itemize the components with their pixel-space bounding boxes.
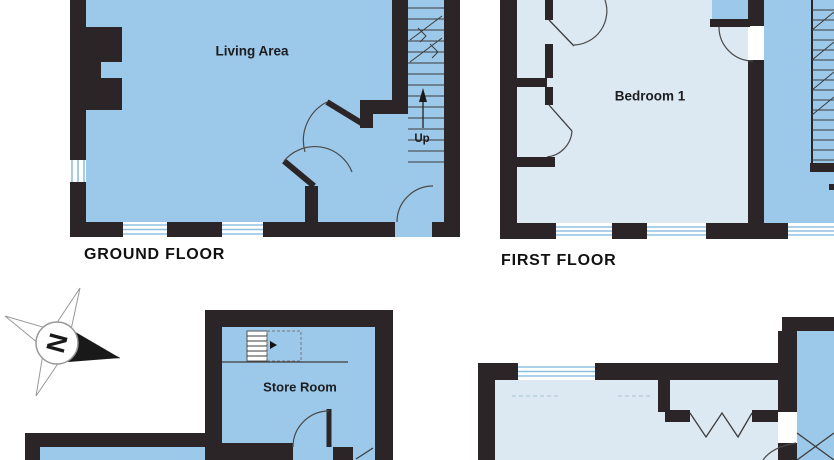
floor-plan-drawing: N [0, 0, 834, 460]
bedroom-1-label: Bedroom 1 [615, 89, 686, 104]
ground-floor-plan [70, 0, 460, 237]
first-floor-title: FIRST FLOOR [501, 252, 616, 270]
window [647, 223, 706, 239]
window [222, 222, 263, 237]
rear-room-plan [478, 317, 834, 460]
first-floor-plan [500, 0, 834, 239]
store-room-plan [25, 310, 393, 460]
window [788, 223, 834, 239]
window [123, 222, 167, 237]
window [518, 363, 595, 380]
store-room-label: Store Room [263, 380, 337, 395]
compass-rose: N [5, 288, 120, 396]
window [556, 223, 612, 239]
up-label: Up [414, 133, 429, 145]
ground-floor-title: GROUND FLOOR [84, 246, 225, 264]
living-area-label: Living Area [215, 44, 288, 59]
floor-plan-canvas: N Living Area Up GROUND FLOOR Bedroom 1 … [0, 0, 834, 460]
window [70, 160, 86, 182]
